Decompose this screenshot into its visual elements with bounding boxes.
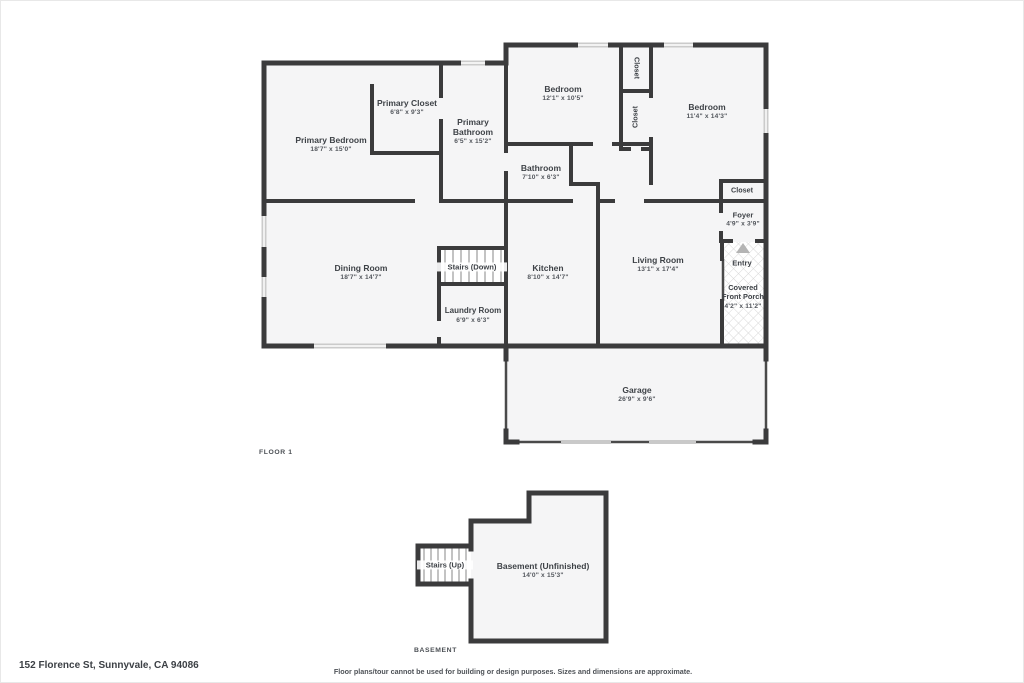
- disclaimer-text: Floor plans/tour cannot be used for buil…: [1, 667, 1024, 676]
- porch-hatch: [724, 242, 765, 345]
- floorplan-page: Primary Bedroom 18'7" x 15'0" Primary Cl…: [0, 0, 1024, 683]
- floor1-caption: FLOOR 1: [259, 449, 293, 456]
- floorplan-drawing: [1, 1, 1024, 683]
- room-fills: [264, 45, 766, 641]
- basement-caption: BASEMENT: [414, 647, 457, 654]
